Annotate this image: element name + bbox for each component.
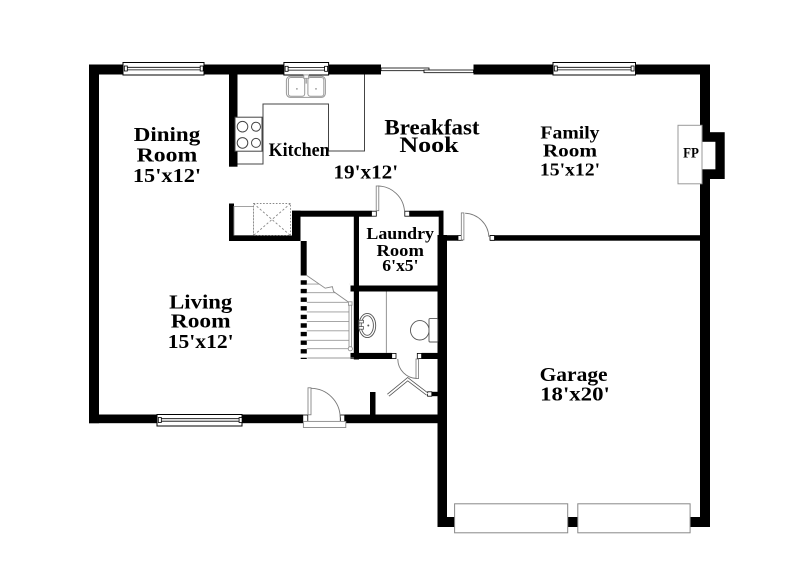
- svg-text:15'x12': 15'x12': [168, 331, 234, 353]
- svg-text:18'x20': 18'x20': [540, 384, 610, 406]
- svg-text:FP: FP: [683, 146, 699, 162]
- svg-text:Kitchen: Kitchen: [269, 140, 330, 161]
- svg-text:15'x12': 15'x12': [133, 165, 201, 187]
- svg-text:Garage: Garage: [540, 364, 608, 386]
- svg-text:15'x12': 15'x12': [540, 160, 600, 180]
- svg-text:6'x5': 6'x5': [382, 256, 418, 275]
- svg-text:Room: Room: [137, 144, 198, 166]
- svg-text:Nook: Nook: [399, 132, 459, 157]
- svg-text:Dining: Dining: [134, 124, 200, 146]
- svg-text:19'x12': 19'x12': [333, 162, 398, 183]
- svg-text:Room: Room: [543, 140, 598, 160]
- svg-text:Room: Room: [171, 311, 231, 333]
